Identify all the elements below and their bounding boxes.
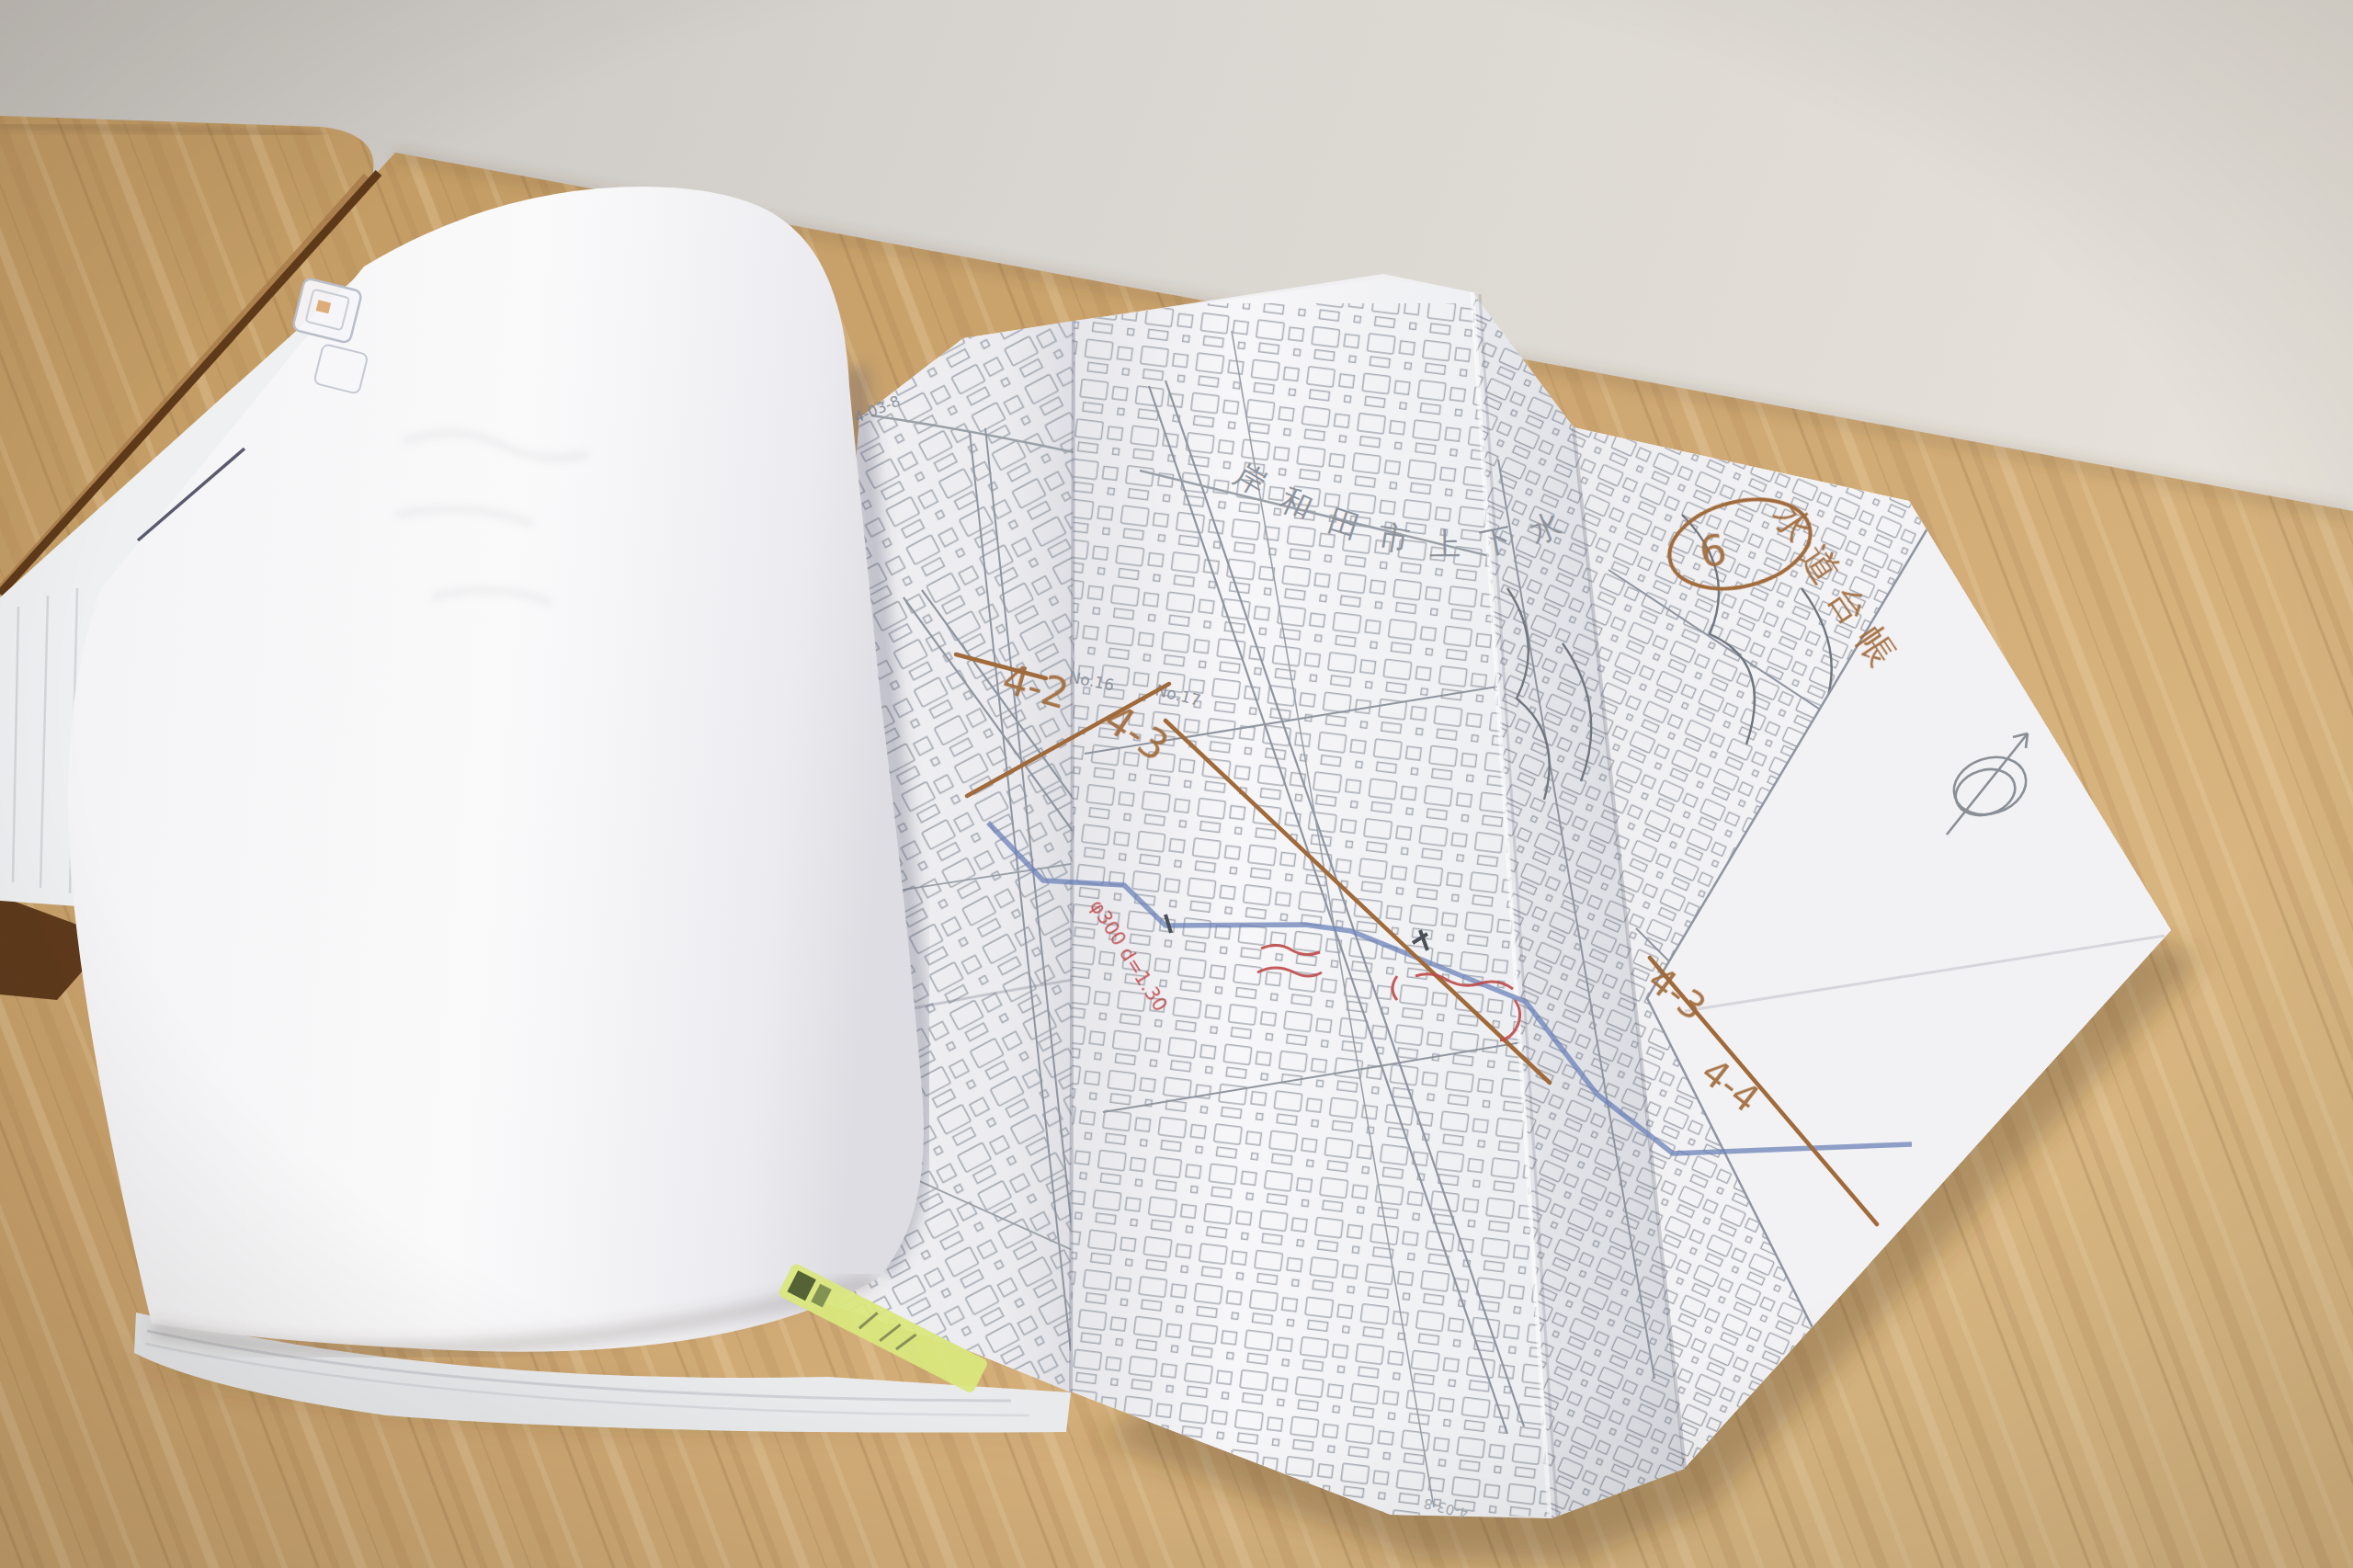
scene: 岸和田市上下水道局 4-03-8 No.16 No.17 4-03-8 4-2 … xyxy=(0,0,2353,1568)
vignette xyxy=(0,0,2353,1568)
photo-of-water-ledger-map-on-desk: 岸和田市上下水道局 4-03-8 No.16 No.17 4-03-8 4-2 … xyxy=(0,0,2353,1568)
